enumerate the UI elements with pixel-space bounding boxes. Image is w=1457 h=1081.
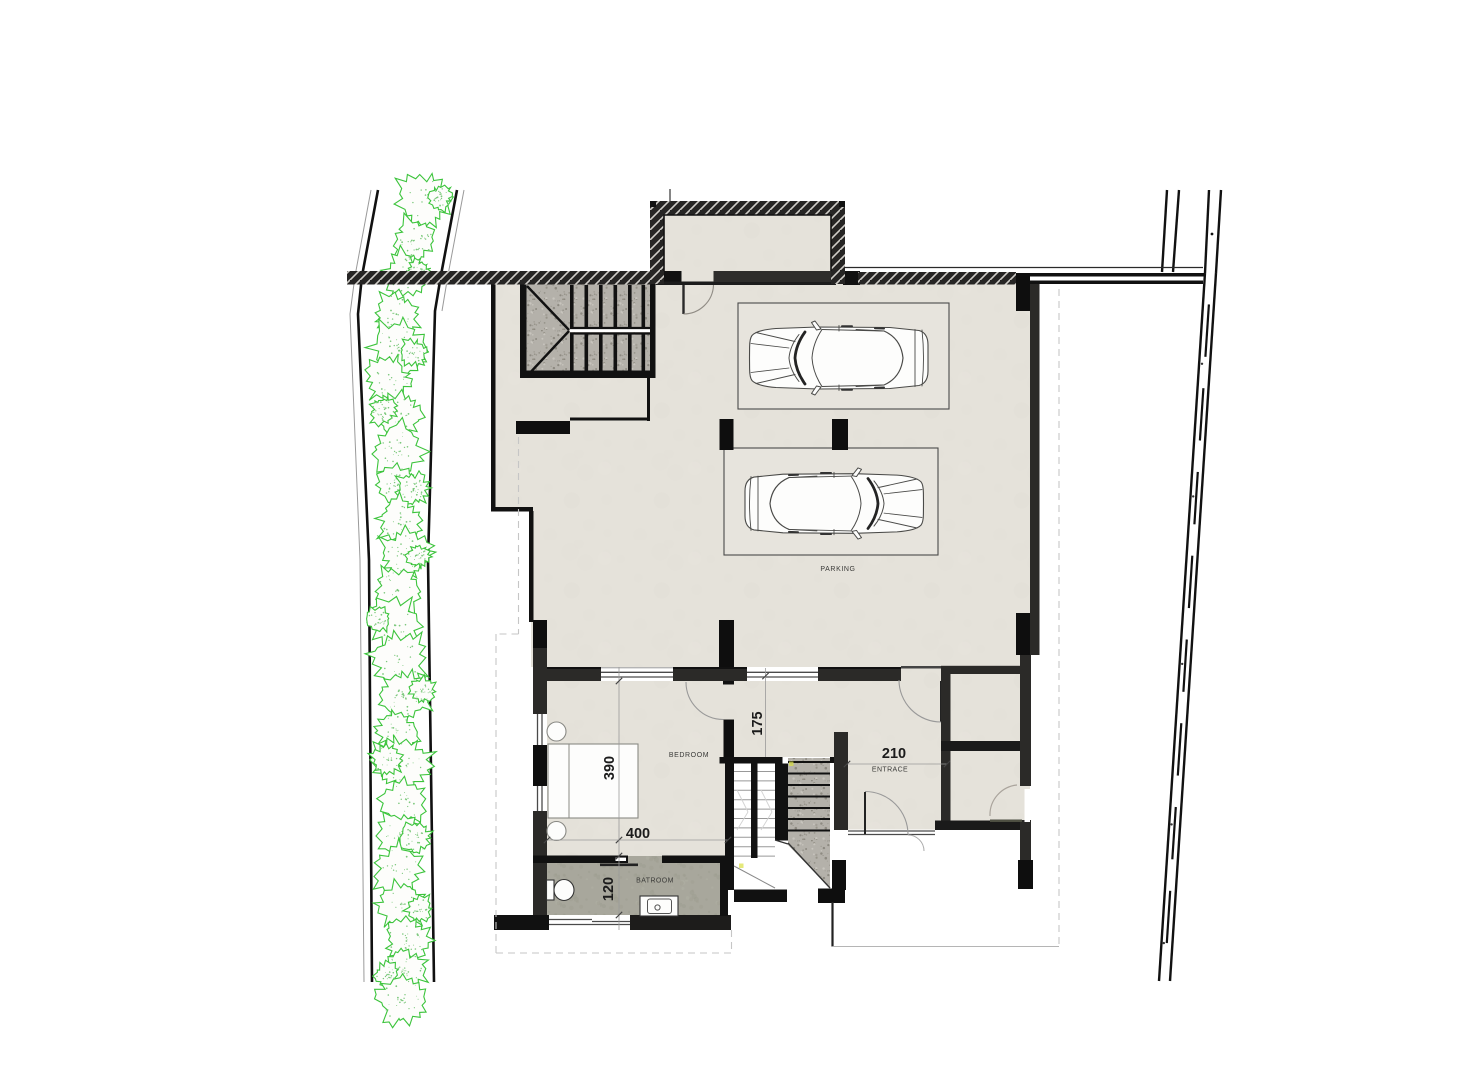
svg-text:BEDROOM: BEDROOM: [669, 752, 709, 759]
svg-text:120: 120: [601, 877, 617, 901]
svg-text:BATROOM: BATROOM: [636, 878, 674, 885]
svg-text:175: 175: [750, 711, 766, 735]
svg-text:PARKING: PARKING: [820, 566, 855, 573]
svg-text:400: 400: [626, 826, 650, 842]
svg-text:ENTRACE: ENTRACE: [872, 767, 908, 774]
svg-text:390: 390: [602, 756, 618, 780]
svg-text:210: 210: [882, 746, 906, 762]
